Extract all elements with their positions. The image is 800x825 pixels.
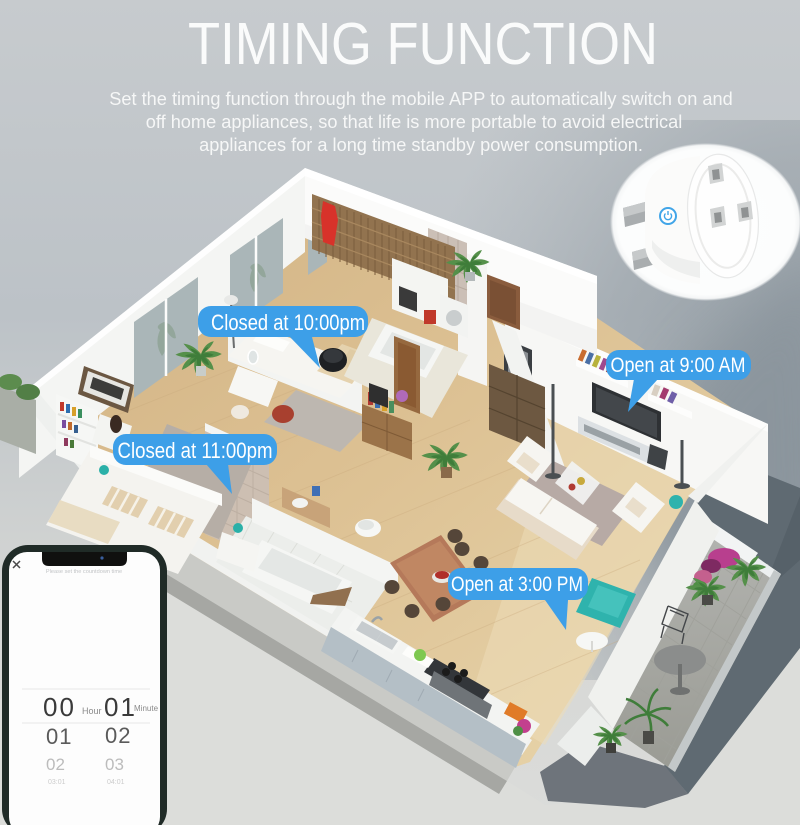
svg-text:Open at 3:00 PM: Open at 3:00 PM xyxy=(451,573,583,596)
svg-text:03: 03 xyxy=(105,755,124,774)
svg-text:Closed at 10:00pm: Closed at 10:00pm xyxy=(211,310,365,335)
svg-text:03:01: 03:01 xyxy=(48,779,66,786)
svg-text:Closed at 11:00pm: Closed at 11:00pm xyxy=(118,438,273,463)
svg-text:off home appliances, so that l: off home appliances, so that life is mor… xyxy=(146,112,683,132)
svg-text:Please set the countdown time: Please set the countdown time xyxy=(46,569,122,575)
svg-text:Minute: Minute xyxy=(134,704,159,713)
svg-text:02: 02 xyxy=(46,755,65,774)
svg-text:02: 02 xyxy=(105,723,131,748)
svg-text:Open at 9:00 AM: Open at 9:00 AM xyxy=(611,354,746,377)
svg-text:01: 01 xyxy=(104,692,137,722)
svg-text:appliances for a long time sta: appliances for a long time standby power… xyxy=(199,135,643,155)
svg-text:Set the timing function throug: Set the timing function through the mobi… xyxy=(109,89,732,109)
svg-text:TIMING FUNCTION: TIMING FUNCTION xyxy=(188,11,658,77)
svg-text:01: 01 xyxy=(46,724,72,749)
svg-text:00: 00 xyxy=(43,692,76,722)
svg-text:04:01: 04:01 xyxy=(107,779,125,786)
svg-text:Hour: Hour xyxy=(82,706,102,716)
